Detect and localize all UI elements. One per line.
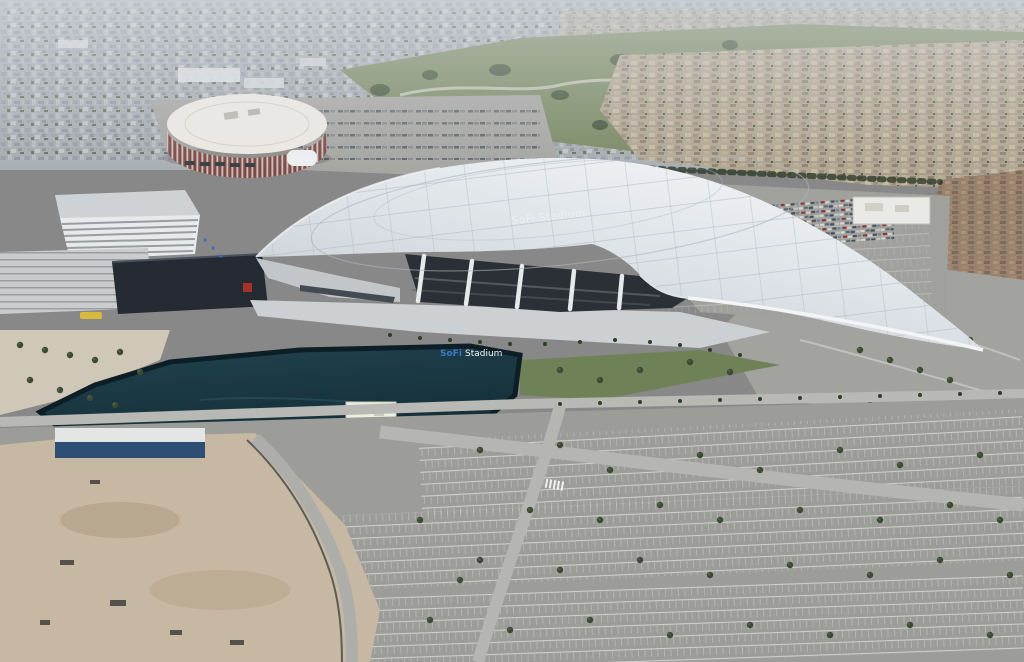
warehouse-roof [55,428,205,442]
atmospheric-haze-overlay [0,0,1024,170]
scene-canvas: SoFi Stadium SoFi Stadium [0,0,1024,662]
sign-word-stadium: Stadium [465,349,502,359]
sign-word-sofi: SoFi [440,349,462,359]
sofi-stadium-lake-sign: SoFi Stadium [440,349,502,359]
theater-logo [243,283,252,292]
commercial-building [853,197,930,224]
warehouse-blue-wall [55,442,205,458]
blue-banner-poles [203,238,222,257]
aerial-photo-of-sofi-stadium: SoFi Stadium SoFi Stadium [0,0,1024,662]
yellow-bus [80,312,102,319]
office-campus [0,190,268,319]
